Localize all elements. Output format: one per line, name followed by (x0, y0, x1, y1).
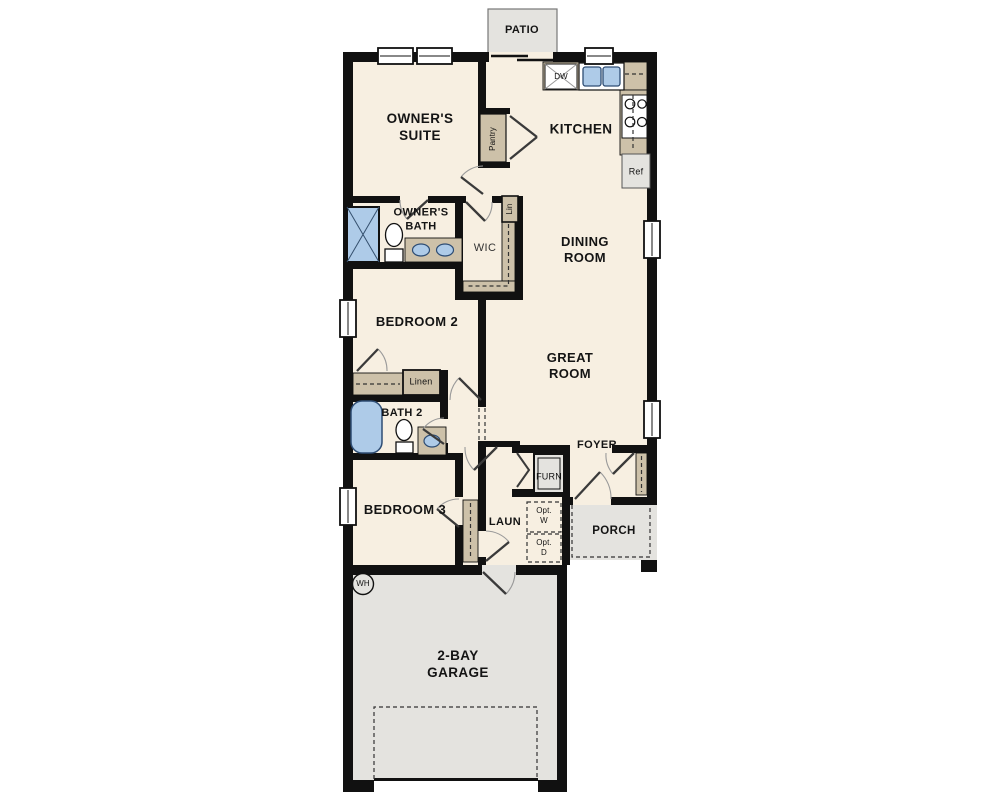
fixture-label-water-heater: WH (356, 579, 370, 589)
room-label-great-room: GREAT ROOM (547, 350, 594, 383)
room-label-kitchen: KITCHEN (550, 122, 613, 139)
room-label-bedroom3: BEDROOM 3 (364, 502, 446, 518)
floor-plan-canvas: PATIO OWNER'S SUITE KITCHEN DW Pantry Re… (0, 0, 1000, 800)
room-label-wic: WIC (474, 242, 497, 256)
fixture-label-pantry: Pantry (488, 127, 498, 151)
room-label-owners-suite: OWNER'S SUITE (387, 111, 454, 145)
label-layer: PATIO OWNER'S SUITE KITCHEN DW Pantry Re… (0, 0, 1000, 800)
fixture-label-opt-dryer: Opt. D (536, 538, 552, 558)
fixture-label-furnace: FURN (536, 471, 562, 482)
room-label-owners-bath: OWNER'S BATH (394, 206, 449, 234)
fixture-label-refrigerator: Ref (629, 166, 644, 177)
room-label-foyer: FOYER (577, 439, 617, 453)
fixture-label-opt-washer: Opt. W (536, 506, 552, 526)
fixture-label-linen-wic: Lin (505, 204, 515, 215)
room-label-porch: PORCH (592, 524, 636, 538)
room-label-dining: DINING ROOM (561, 234, 609, 267)
room-label-bedroom2: BEDROOM 2 (376, 314, 458, 330)
fixture-label-dishwasher: DW (554, 72, 568, 82)
room-label-garage: 2-BAY GARAGE (427, 648, 489, 682)
fixture-label-linen: Linen (409, 376, 432, 387)
room-label-bath2: BATH 2 (381, 407, 422, 421)
room-label-laundry: LAUN (489, 516, 521, 530)
room-label-patio: PATIO (505, 24, 539, 38)
